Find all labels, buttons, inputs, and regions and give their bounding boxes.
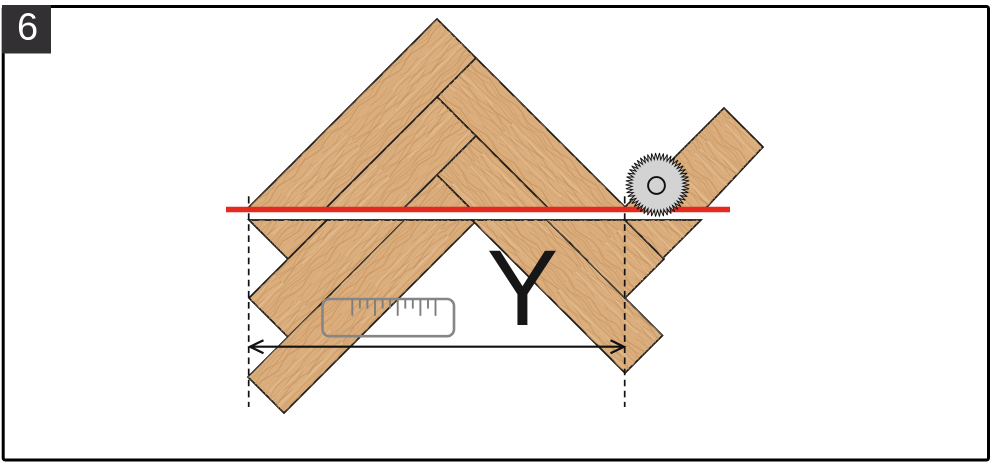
- svg-text:Y: Y: [487, 228, 559, 348]
- svg-text:6: 6: [17, 7, 38, 49]
